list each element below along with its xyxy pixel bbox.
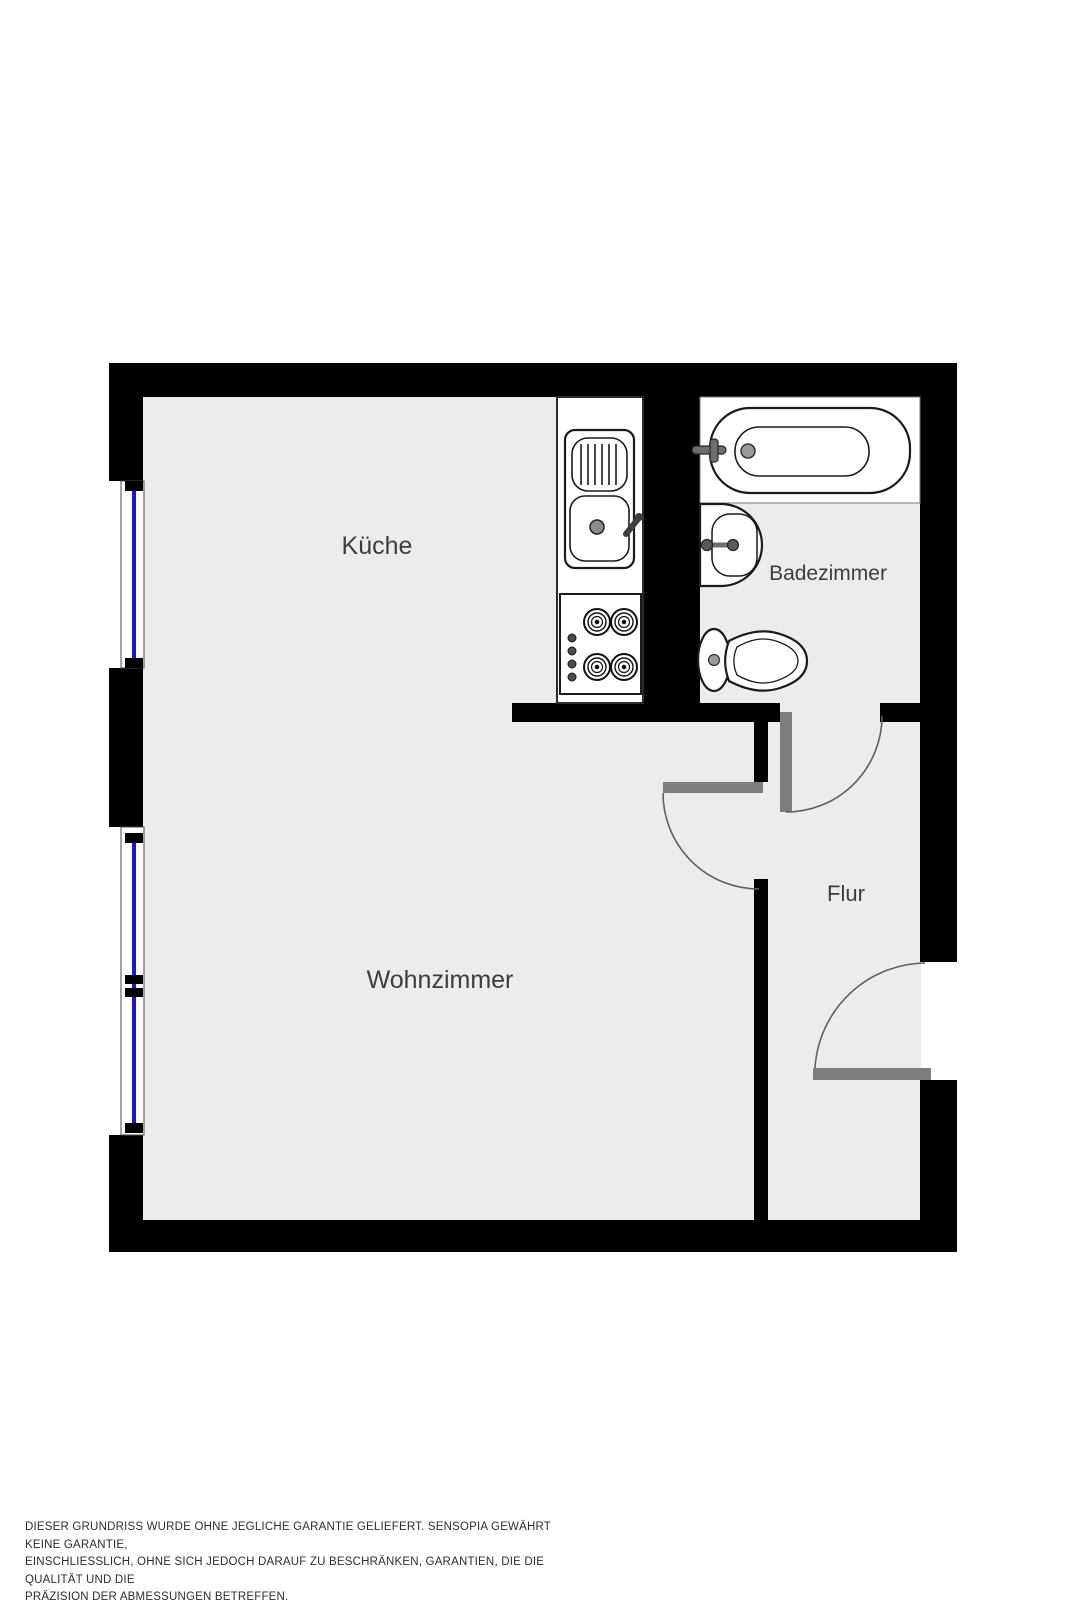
kitchen-sink-icon (565, 430, 643, 568)
disclaimer-line-2: EINSCHLIESSLICH, OHNE SICH JEDOCH DARAUF… (25, 1554, 585, 1589)
kitchen-counter (557, 397, 643, 703)
floor-bathroom-doorway (780, 703, 880, 722)
disclaimer-line-1: DIESER GRUNDRISS WURDE OHNE JEGLICHE GAR… (25, 1519, 585, 1554)
window-living-room (121, 827, 144, 1135)
window-cap-bottom (125, 1123, 143, 1133)
window-kitchen (121, 481, 144, 668)
wall-kitchen-stub (512, 703, 780, 722)
room-label-kueche: Küche (342, 532, 413, 560)
toilet-flush-button (709, 655, 720, 666)
room-label-wohnzimmer: Wohnzimmer (367, 966, 514, 994)
window-glass (132, 489, 136, 660)
wall-right-lower (920, 1080, 957, 1252)
wall-bottom (109, 1220, 957, 1252)
room-label-flur: Flur (827, 881, 865, 906)
disclaimer-text: DIESER GRUNDRISS WURDE OHNE JEGLICHE GAR… (25, 1519, 585, 1600)
window-mullion-upper (125, 975, 143, 984)
wall-left-upper (109, 363, 143, 481)
wall-hallway-divider-upper (754, 703, 768, 782)
toilet-bowl (725, 631, 807, 690)
door-leaf (813, 1068, 931, 1080)
floorplan-drawing: Küche Badezimmer Wohnzimmer Flur (0, 0, 1067, 1600)
disclaimer-line-3: PRÄZISION DER ABMESSUNGEN BETREFFEN. (25, 1589, 585, 1600)
floor-livingroom-doorway (754, 782, 768, 879)
bathtub-drain (741, 444, 755, 458)
wall-left-middle (109, 668, 143, 827)
stove-icon (560, 594, 641, 694)
window-cap-top (125, 833, 143, 843)
door-leaf (780, 712, 792, 812)
sink-drain (590, 520, 604, 534)
bathtub-icon (692, 397, 920, 503)
wall-left-lower (109, 1135, 143, 1252)
room-label-badezimmer: Badezimmer (769, 562, 887, 585)
floor-areas (143, 397, 921, 1220)
wall-top (109, 363, 957, 397)
door-leaf (663, 782, 763, 793)
sink-faucet-tip (635, 513, 643, 521)
window-mullion-lower (125, 988, 143, 997)
wall-kitchen-bathroom-divider (643, 397, 700, 722)
toilet-icon (698, 629, 807, 691)
wall-right-upper (920, 363, 957, 962)
wall-hallway-divider-lower (754, 879, 768, 1220)
window-cap-top (125, 481, 143, 491)
window-cap-bottom (125, 658, 143, 668)
wall-bathroom-bottom-right (880, 703, 920, 722)
bathtub-faucet-handle (710, 439, 718, 462)
washbasin-faucet-spout (728, 540, 739, 551)
floorplan-page: Küche Badezimmer Wohnzimmer Flur DIESER … (0, 0, 1067, 1600)
washbasin-faucet-base (702, 540, 713, 551)
bathtub-faucet (692, 446, 726, 454)
